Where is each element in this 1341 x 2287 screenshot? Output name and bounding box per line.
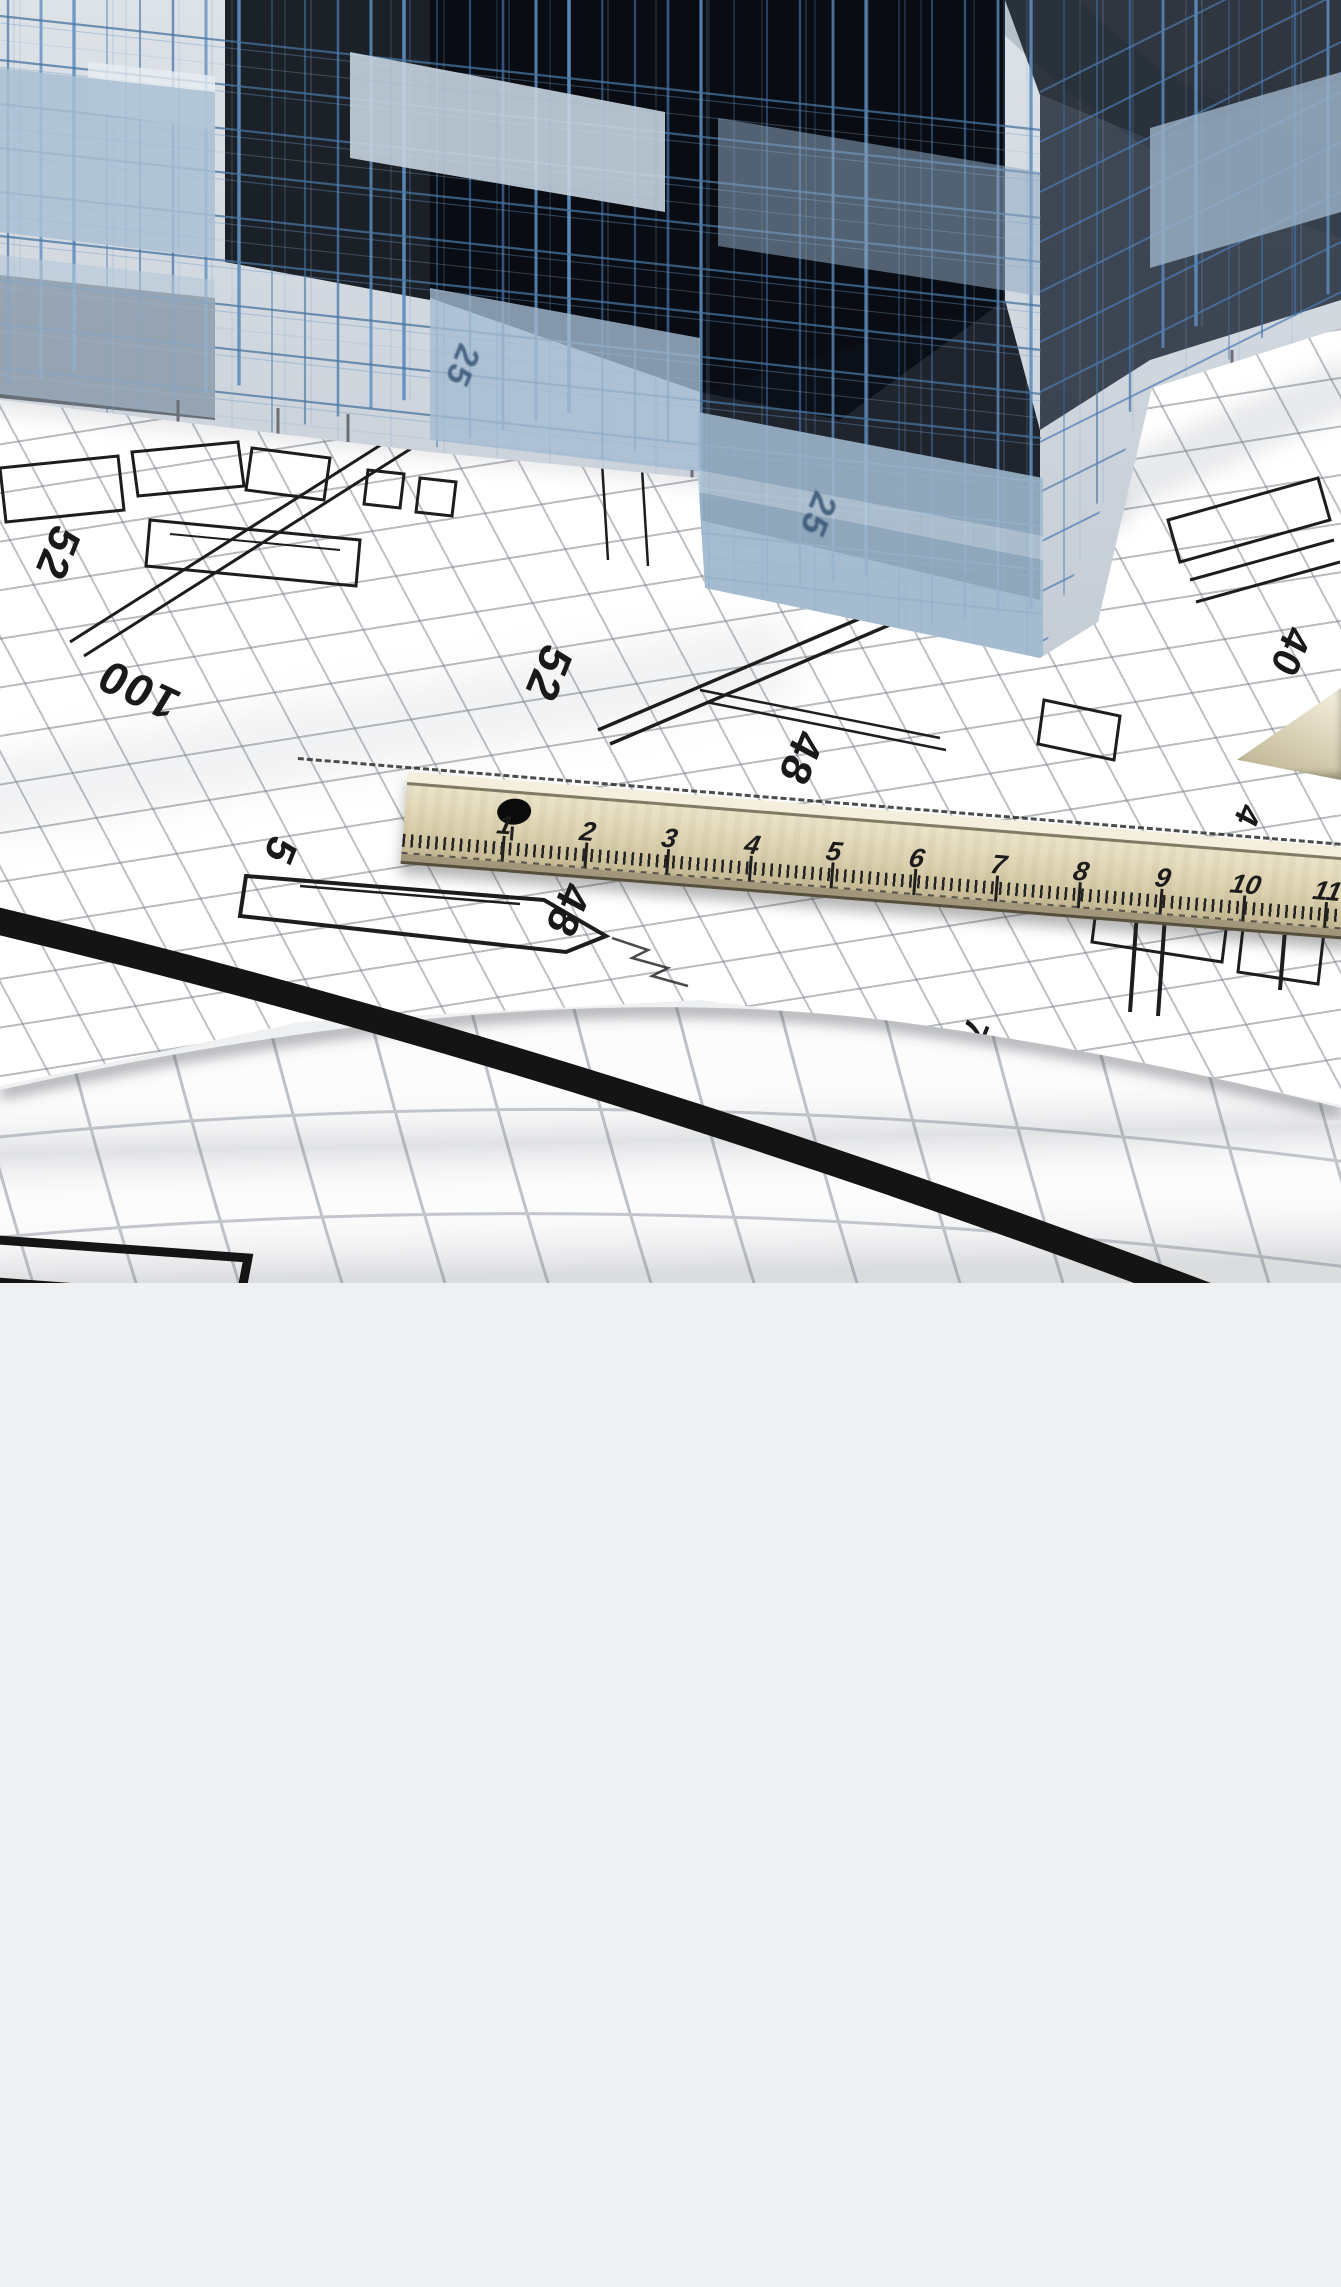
roll-cylinder-shading — [0, 940, 1341, 1283]
scene-root: { "blueprint": { "annotations": [ {"text… — [0, 0, 1341, 1283]
rolled-blueprint — [0, 940, 1341, 1283]
